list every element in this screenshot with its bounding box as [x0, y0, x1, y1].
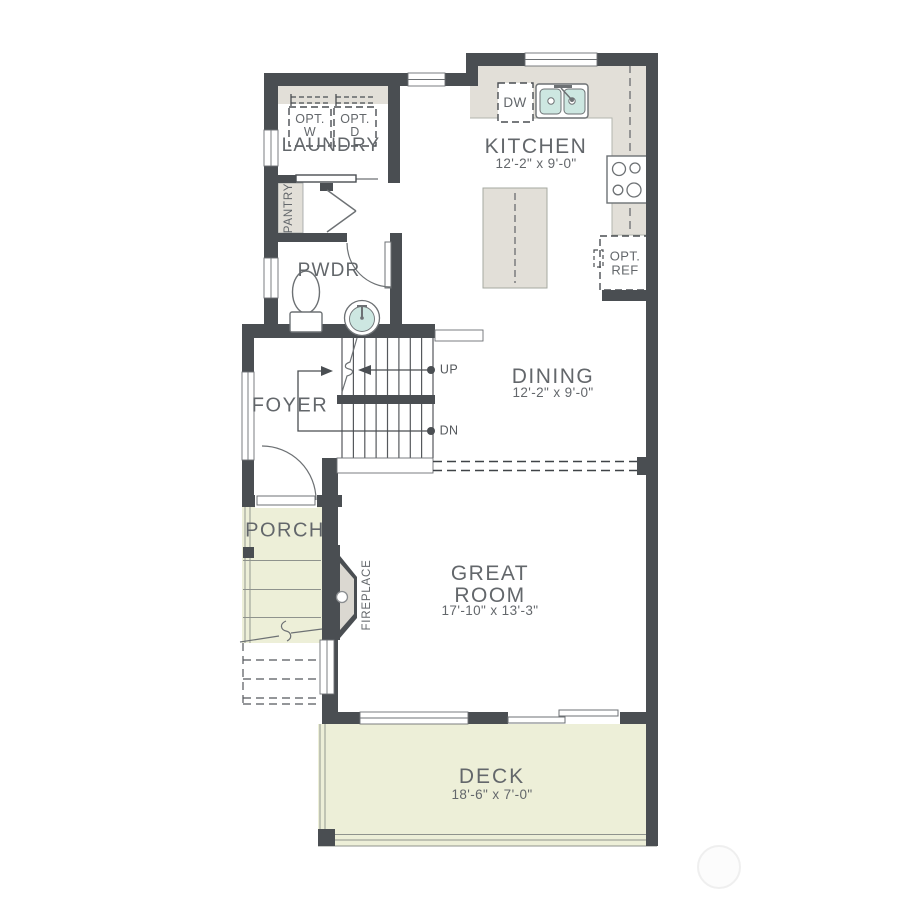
porch-post: [243, 547, 254, 558]
powder-label: PWDR: [298, 261, 361, 281]
stair-top-rail: [435, 330, 483, 341]
porch-steps-dashed: [243, 643, 320, 704]
hall-top-window: [408, 73, 445, 86]
great-room-side-window: [320, 640, 334, 694]
laundry-label: LAUNDRY: [282, 136, 381, 156]
fireplace-label: FIREPLACE: [362, 559, 374, 630]
stair-bottom-edge: [337, 458, 433, 473]
deck-post: [318, 829, 335, 846]
floorplan-drawing: [0, 0, 900, 900]
stair-landing-wall: [337, 395, 435, 404]
great-room-dims: 17'-10" x 13'-3": [442, 604, 539, 618]
laundry-counter: [278, 85, 388, 104]
stair-break-line: [342, 338, 357, 392]
outdoor-areas: [242, 507, 646, 846]
kitchen-sink: [536, 84, 588, 118]
kitchen-top-window: [525, 53, 597, 66]
dishwasher-label: DW: [503, 96, 526, 110]
sliding-glass-door: [508, 710, 620, 724]
optional-washer-label: OPT. W: [295, 113, 324, 139]
optional-fridge-label: OPT. REF: [610, 249, 641, 276]
stove: [607, 156, 647, 203]
deck-label: DECK: [459, 766, 525, 788]
foyer-label: FOYER: [252, 396, 328, 417]
dining-dims: 12'-2" x 9'-0": [512, 386, 593, 400]
laundry-side-window: [264, 130, 278, 166]
front-door: [255, 446, 317, 508]
watermark-circle: [698, 846, 740, 888]
pantry-label: PANTRY: [284, 183, 296, 233]
up-arrow: [358, 365, 435, 375]
laundry-pocket-door: [296, 175, 378, 182]
kitchen-dims: 12'-2" x 9'-0": [495, 157, 576, 171]
optional-dryer-label: OPT. D: [340, 113, 369, 139]
stairs-up-label: UP: [440, 364, 458, 377]
floorplan-page: LAUNDRY OPT. W OPT. D PANTRY PWDR KITCHE…: [0, 0, 900, 900]
porch-label: PORCH: [245, 521, 325, 542]
deck-dims: 18'-6" x 7'-0": [451, 788, 532, 802]
kitchen-label: KITCHEN: [485, 136, 588, 158]
great-room-label: GREAT ROOM: [451, 563, 529, 607]
pantry-doors: [327, 190, 356, 232]
great-room-bottom-window: [360, 712, 468, 724]
powder-side-window: [264, 258, 278, 298]
powder-sink: [345, 301, 380, 336]
stairs-down-label: DN: [440, 425, 459, 438]
fireplace: [322, 545, 357, 640]
